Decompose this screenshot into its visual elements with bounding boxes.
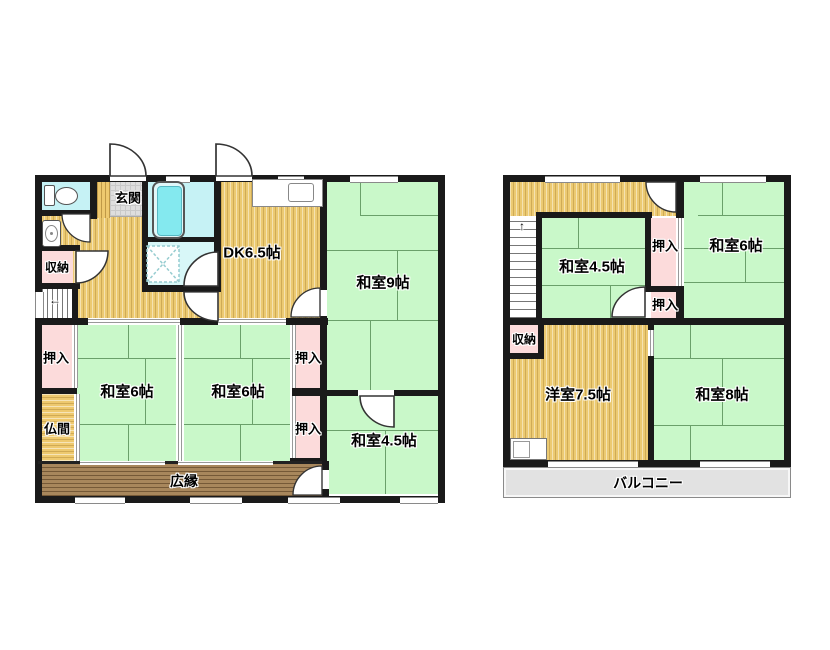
tatami-line bbox=[327, 250, 438, 251]
door-swing-icon bbox=[646, 182, 676, 212]
tatami-line bbox=[698, 215, 784, 216]
tatami-line bbox=[77, 424, 176, 425]
room-label: 和室4.5帖 bbox=[351, 430, 417, 451]
room-label: 収納 bbox=[512, 331, 536, 348]
tatami-line bbox=[542, 248, 645, 249]
wall bbox=[438, 175, 445, 503]
tatami-line bbox=[360, 215, 438, 216]
sliding-door bbox=[80, 461, 165, 465]
tatami-line bbox=[128, 424, 129, 461]
tatami-line bbox=[184, 424, 290, 425]
tatami-line bbox=[654, 358, 784, 359]
room-label: 和室6帖 bbox=[211, 381, 264, 402]
room-label: 押入 bbox=[652, 295, 678, 314]
tatami-line bbox=[327, 320, 438, 321]
room-label: 押入 bbox=[295, 419, 321, 438]
tatami-line bbox=[610, 285, 611, 318]
window bbox=[288, 497, 340, 504]
tatami-line bbox=[654, 425, 784, 426]
entry-step bbox=[97, 180, 110, 218]
door-swing-icon bbox=[62, 214, 90, 242]
wall bbox=[503, 353, 544, 359]
floorplan-canvas: 玄関 収納 DK6.5帖 和室9帖 押入 和室6帖 和室6帖 押入 押入 仏間 … bbox=[0, 0, 830, 650]
door-swing-icon bbox=[110, 144, 146, 176]
sliding-door bbox=[176, 325, 184, 461]
tatami-line bbox=[722, 182, 723, 215]
tatami-line bbox=[240, 424, 241, 461]
room-label: 仏間 bbox=[44, 419, 70, 438]
window bbox=[400, 497, 438, 504]
door-swing-icon bbox=[360, 396, 394, 427]
tatami-line bbox=[690, 325, 691, 358]
room-label: 押入 bbox=[43, 348, 69, 367]
tatami-line bbox=[684, 282, 784, 283]
sliding-door bbox=[218, 318, 286, 325]
window bbox=[700, 461, 770, 468]
tatami-line bbox=[128, 325, 129, 358]
wall bbox=[503, 318, 791, 325]
room-label: 広縁 bbox=[170, 471, 198, 491]
tatami-line bbox=[77, 358, 176, 359]
sliding-door bbox=[178, 461, 273, 465]
sliding-door bbox=[72, 325, 78, 388]
room-label: 洋室7.5帖 bbox=[545, 384, 611, 405]
tatami-line bbox=[240, 325, 241, 358]
room-label: 和室6帖 bbox=[709, 235, 762, 256]
wall bbox=[292, 388, 326, 396]
stairs-direction-arrow: ↑ bbox=[519, 219, 525, 233]
door-swing-icon bbox=[612, 287, 645, 317]
window bbox=[545, 176, 620, 183]
tatami-line bbox=[184, 358, 290, 359]
door-swing-icon bbox=[184, 292, 218, 321]
room-label: 和室4.5帖 bbox=[559, 256, 625, 277]
window bbox=[350, 176, 398, 183]
window bbox=[548, 461, 638, 468]
tatami-line bbox=[690, 425, 691, 460]
washbasin-drain-icon bbox=[50, 232, 53, 235]
toilet-bowl-icon bbox=[55, 187, 78, 205]
room-label: 和室8帖 bbox=[695, 384, 748, 405]
door-swing-icon bbox=[76, 251, 108, 283]
door-opening bbox=[645, 288, 651, 316]
bathtub-water-icon bbox=[157, 186, 182, 236]
washing-machine-pan-icon bbox=[146, 245, 180, 283]
room-label: バルコニー bbox=[613, 473, 683, 493]
wall bbox=[676, 175, 684, 218]
sliding-door bbox=[648, 330, 654, 356]
room-label: DK6.5帖 bbox=[223, 242, 281, 263]
window bbox=[75, 497, 125, 504]
stairs-direction-arrow: ← bbox=[49, 293, 61, 307]
genkan-edge-line bbox=[110, 216, 146, 217]
tatami-line bbox=[360, 182, 361, 215]
window bbox=[35, 292, 44, 318]
tatami-line bbox=[542, 285, 645, 286]
kitchen-sink-icon bbox=[288, 183, 314, 202]
window bbox=[190, 497, 242, 504]
tatami-line bbox=[578, 218, 579, 248]
room-label: 押入 bbox=[295, 348, 321, 367]
room-label: 和室9帖 bbox=[356, 272, 409, 293]
tatami-line bbox=[370, 320, 371, 390]
room-label: 玄関 bbox=[115, 188, 141, 207]
room-label: 押入 bbox=[652, 236, 678, 255]
wall bbox=[142, 237, 221, 242]
door-opening bbox=[320, 290, 327, 316]
door-swing-icon bbox=[293, 466, 322, 495]
closet-box-inner-icon bbox=[513, 441, 530, 458]
sliding-door bbox=[88, 318, 180, 325]
door-swing-icon bbox=[216, 144, 252, 176]
stairs-2f bbox=[510, 218, 536, 318]
door-swing-icon bbox=[291, 288, 320, 317]
sliding-door bbox=[74, 394, 80, 461]
door-swing-icon bbox=[184, 252, 218, 286]
room-label: 和室6帖 bbox=[100, 381, 153, 402]
wall bbox=[35, 175, 42, 503]
door-opening bbox=[322, 470, 329, 489]
room-label: 収納 bbox=[45, 259, 69, 276]
window bbox=[700, 176, 766, 183]
wall bbox=[35, 388, 77, 394]
wall bbox=[540, 212, 652, 218]
toilet-tank-icon bbox=[44, 185, 55, 206]
wall bbox=[536, 212, 542, 325]
